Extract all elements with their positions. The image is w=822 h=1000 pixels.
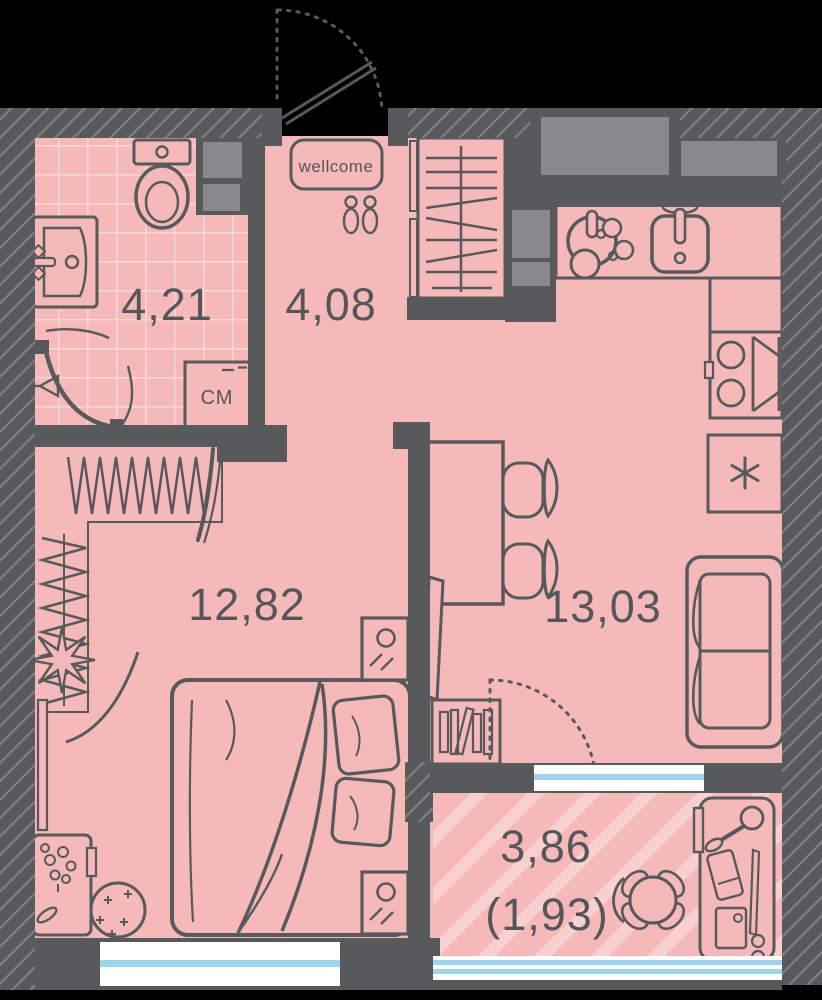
rug	[91, 883, 145, 938]
sofa	[687, 557, 783, 747]
desk	[700, 798, 774, 963]
pillow-icon	[332, 695, 399, 775]
wall-mirror	[38, 700, 47, 830]
area-label-balcony: 3,86	[500, 821, 592, 872]
pc-tower-icon	[716, 908, 746, 948]
dresser	[33, 835, 96, 935]
window-bedroom	[100, 942, 340, 986]
wall-left	[0, 108, 35, 990]
vent-shaft	[203, 184, 240, 211]
wall-top-left	[0, 108, 280, 138]
area-label-hallway: 4,08	[285, 279, 377, 330]
nightstand	[362, 872, 408, 934]
door-jamb	[388, 108, 408, 146]
area-label-bathroom: 4,21	[121, 279, 213, 330]
vent-shaft	[512, 210, 550, 258]
pillow-icon	[331, 778, 394, 847]
vent-shaft	[541, 117, 669, 175]
area-label-balcony-coefficient: (1,93)	[485, 889, 609, 940]
wall-below-closet	[407, 297, 520, 320]
fridge-icon	[708, 435, 782, 512]
area-label-bedroom: 12,82	[188, 579, 306, 630]
floor-plan: 4,21 4,08 12,82 13,03 3,86 (1,93) wellco…	[0, 0, 822, 1000]
monitor-icon	[694, 808, 703, 852]
area-label-kitchen-living: 13,03	[544, 581, 662, 632]
vent-shaft	[203, 142, 242, 178]
washing-machine-label: СМ	[201, 387, 234, 409]
wall-top-mid	[390, 108, 535, 138]
wall-bathroom-bottom	[35, 425, 287, 447]
vent-shaft	[512, 262, 550, 286]
wall-bathroom-right	[248, 138, 265, 447]
toilet-icon	[134, 140, 190, 228]
floor-plan-svg: 4,21 4,08 12,82 13,03 3,86 (1,93) wellco…	[0, 0, 822, 1000]
doormat-label: wellcome	[298, 157, 374, 176]
partition-wall	[408, 422, 430, 990]
entry-closet	[410, 138, 505, 298]
balcony-glazing	[433, 956, 782, 980]
vent-shaft	[681, 141, 777, 176]
wall-column-hatched	[405, 762, 433, 822]
chair-icon	[503, 460, 557, 517]
nightstand	[362, 618, 408, 680]
wall-right	[782, 130, 822, 985]
bathroom-sink-icon	[32, 217, 97, 307]
plant-icon	[29, 627, 95, 693]
window-balcony-living	[534, 765, 704, 791]
stove-icon	[705, 332, 782, 418]
wall-behind-counter	[505, 178, 782, 207]
wall-bedroom-door-jamb	[217, 447, 287, 462]
